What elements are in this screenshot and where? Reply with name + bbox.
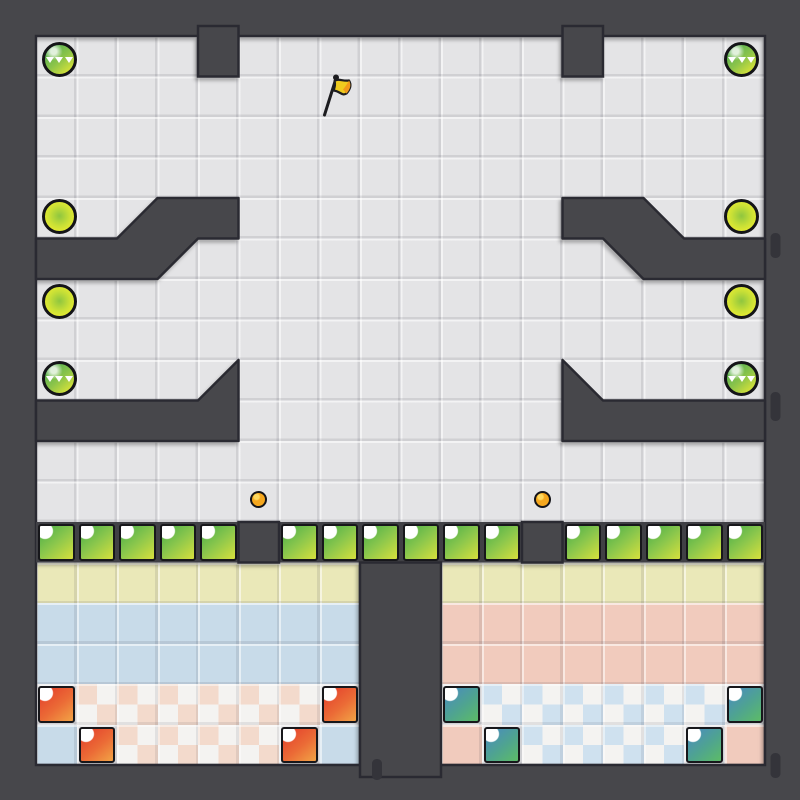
- green-block: [322, 524, 359, 561]
- chevron-down-icon: [728, 57, 736, 63]
- teal-block: [727, 686, 764, 723]
- chevron-down-icon: [747, 57, 755, 63]
- green-block: [79, 524, 116, 561]
- chevron-down-icon: [65, 376, 73, 382]
- green-block: [281, 524, 318, 561]
- chevron-down-icon: [728, 376, 736, 382]
- green-block: [119, 524, 156, 561]
- red-block: [322, 686, 359, 723]
- chevron-down-icon: [55, 57, 63, 63]
- teal-block: [686, 727, 723, 764]
- items-layer: [0, 0, 800, 800]
- chevron-down-icon: [738, 57, 746, 63]
- level-map[interactable]: [0, 0, 800, 800]
- chevron-down-icon: [738, 376, 746, 382]
- green-chevron-dot: [724, 42, 759, 77]
- chevron-down-icon: [46, 57, 54, 63]
- green-block: [646, 524, 683, 561]
- chevron-down-icon: [46, 376, 54, 382]
- green-block: [403, 524, 440, 561]
- orange-button-dot: [534, 491, 551, 508]
- red-block: [38, 686, 75, 723]
- yellow-dot: [42, 199, 77, 234]
- red-block: [281, 727, 318, 764]
- teal-block: [484, 727, 521, 764]
- green-chevron-dot: [42, 361, 77, 396]
- green-block: [484, 524, 521, 561]
- green-chevron-dot: [42, 42, 77, 77]
- teal-block: [443, 686, 480, 723]
- chevron-down-icon: [747, 376, 755, 382]
- green-block: [200, 524, 237, 561]
- green-block: [443, 524, 480, 561]
- green-block: [362, 524, 399, 561]
- orange-button-dot: [250, 491, 267, 508]
- yellow-dot: [724, 284, 759, 319]
- green-block: [605, 524, 642, 561]
- green-block: [565, 524, 602, 561]
- green-chevron-dot: [724, 361, 759, 396]
- green-block: [160, 524, 197, 561]
- green-block: [38, 524, 75, 561]
- yellow-dot: [724, 199, 759, 234]
- chevron-down-icon: [55, 376, 63, 382]
- chevron-down-icon: [65, 57, 73, 63]
- green-block: [727, 524, 764, 561]
- red-block: [79, 727, 116, 764]
- yellow-dot: [42, 284, 77, 319]
- green-block: [686, 524, 723, 561]
- flag-icon: [312, 70, 360, 122]
